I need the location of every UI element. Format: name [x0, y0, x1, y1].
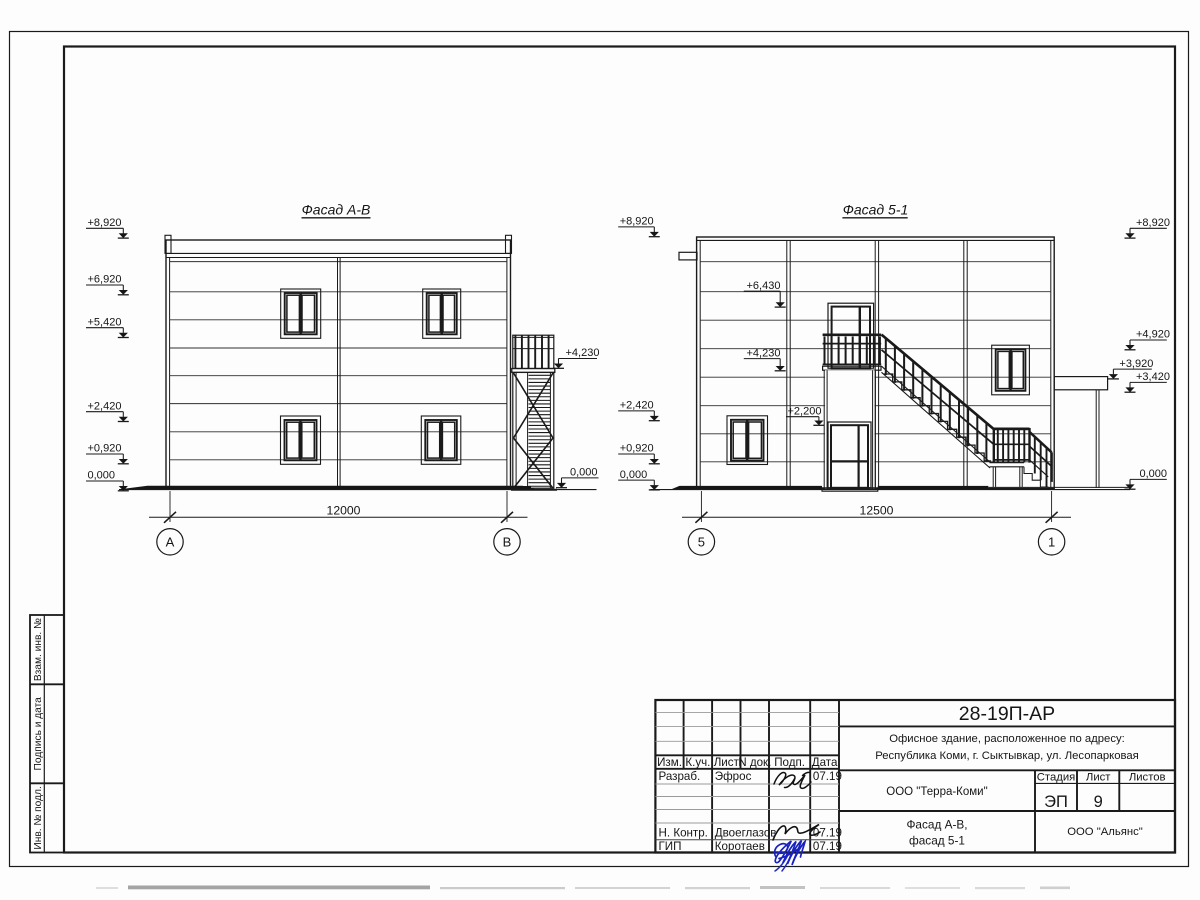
svg-text:Листов: Листов	[1129, 772, 1166, 784]
svg-text:+8,920: +8,920	[1136, 217, 1170, 229]
svg-text:фасад 5-1: фасад 5-1	[909, 833, 965, 847]
svg-text:+6,920: +6,920	[88, 274, 122, 286]
svg-text:А: А	[166, 535, 175, 550]
svg-text:Инв. № подл.: Инв. № подл.	[33, 786, 44, 849]
svg-text:+0,920: +0,920	[88, 443, 122, 455]
svg-text:+2,420: +2,420	[620, 400, 654, 412]
svg-text:+3,920: +3,920	[1119, 358, 1153, 370]
svg-text:+4,230: +4,230	[747, 347, 781, 359]
svg-text:Подпись и дата: Подпись и дата	[33, 697, 44, 771]
svg-text:0,000: 0,000	[1140, 468, 1168, 480]
svg-text:Коротаев: Коротаев	[715, 840, 765, 853]
svg-text:Взам. инв. №: Взам. инв. №	[33, 618, 44, 681]
svg-text:ЭП: ЭП	[1044, 793, 1068, 811]
svg-text:12500: 12500	[860, 503, 894, 517]
svg-text:28-19П-АР: 28-19П-АР	[959, 703, 1055, 725]
svg-text:1: 1	[1048, 535, 1055, 550]
svg-text:Дата: Дата	[812, 756, 838, 769]
svg-text:Лист: Лист	[1086, 772, 1111, 784]
svg-text:Разраб.: Разраб.	[659, 770, 701, 783]
svg-text:+8,920: +8,920	[620, 216, 654, 228]
svg-text:+2,200: +2,200	[788, 405, 822, 417]
svg-text:Фасад А-В: Фасад А-В	[302, 202, 371, 218]
svg-text:0,000: 0,000	[88, 470, 116, 482]
svg-text:В: В	[503, 535, 512, 550]
svg-text:Изм.: Изм.	[657, 756, 682, 769]
svg-text:9: 9	[1094, 793, 1103, 811]
svg-text:+8,920: +8,920	[88, 217, 122, 229]
svg-text:К.уч.: К.уч.	[685, 756, 710, 769]
svg-text:12000: 12000	[327, 503, 361, 517]
svg-text:Стадия: Стадия	[1037, 772, 1076, 784]
svg-text:Двоеглазов: Двоеглазов	[715, 826, 777, 839]
svg-text:ООО "Альянс": ООО "Альянс"	[1067, 826, 1143, 838]
svg-text:+4,230: +4,230	[566, 347, 600, 359]
svg-text:07.19: 07.19	[813, 840, 842, 853]
svg-text:+2,420: +2,420	[88, 400, 122, 412]
svg-text:+3,420: +3,420	[1136, 371, 1170, 383]
svg-text:+5,420: +5,420	[88, 316, 122, 328]
svg-text:5: 5	[698, 535, 705, 550]
svg-text:Эфрос: Эфрос	[715, 770, 752, 783]
svg-text:Н. Контр.: Н. Контр.	[659, 826, 708, 839]
svg-text:0,000: 0,000	[570, 467, 598, 479]
svg-text:ООО "Терра-Коми": ООО "Терра-Коми"	[886, 786, 987, 798]
svg-text:+4,920: +4,920	[1136, 329, 1170, 341]
svg-text:Республика Коми, г. Сыктывкар,: Республика Коми, г. Сыктывкар, ул. Лесоп…	[875, 750, 1139, 762]
svg-text:+6,430: +6,430	[747, 280, 781, 292]
svg-text:Лист: Лист	[714, 756, 740, 769]
svg-text:ГИП: ГИП	[659, 840, 682, 853]
svg-text:Подп.: Подп.	[774, 756, 805, 769]
svg-text:N док.: N док.	[738, 756, 771, 769]
svg-text:+0,920: +0,920	[620, 443, 654, 455]
svg-text:Фасад А-В,: Фасад А-В,	[906, 817, 967, 831]
svg-text:0,000: 0,000	[620, 469, 648, 481]
svg-text:07.19: 07.19	[813, 770, 842, 783]
svg-text:Фасад 5-1: Фасад 5-1	[843, 202, 909, 218]
svg-text:Офисное здание, расположенное: Офисное здание, расположенное по адресу:	[889, 733, 1125, 745]
